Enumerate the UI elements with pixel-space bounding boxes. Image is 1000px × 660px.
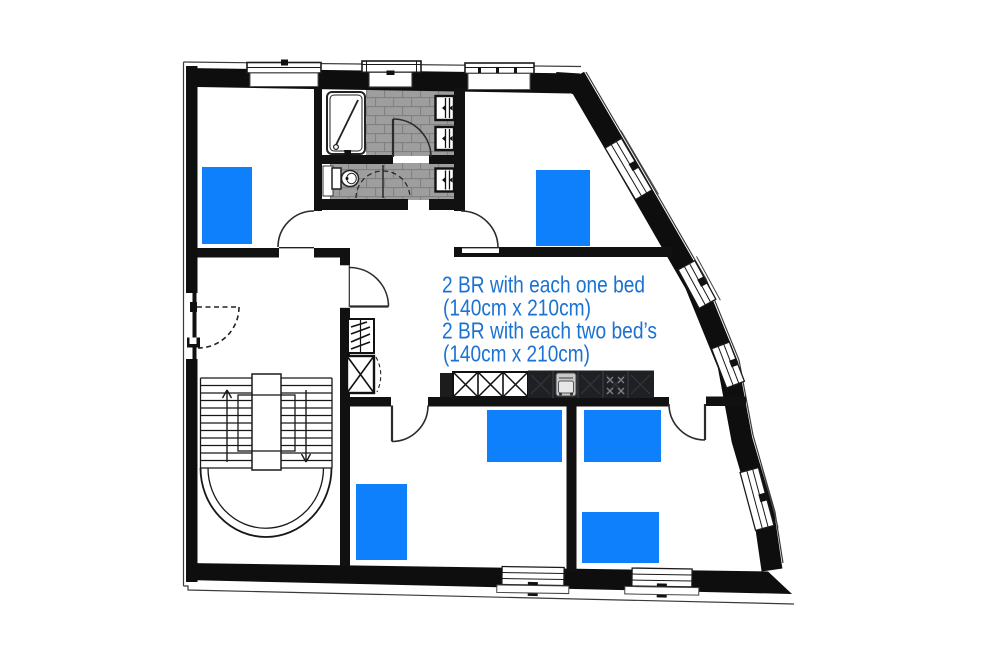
svg-text:(140cm x 210cm): (140cm x 210cm) [443,341,590,367]
